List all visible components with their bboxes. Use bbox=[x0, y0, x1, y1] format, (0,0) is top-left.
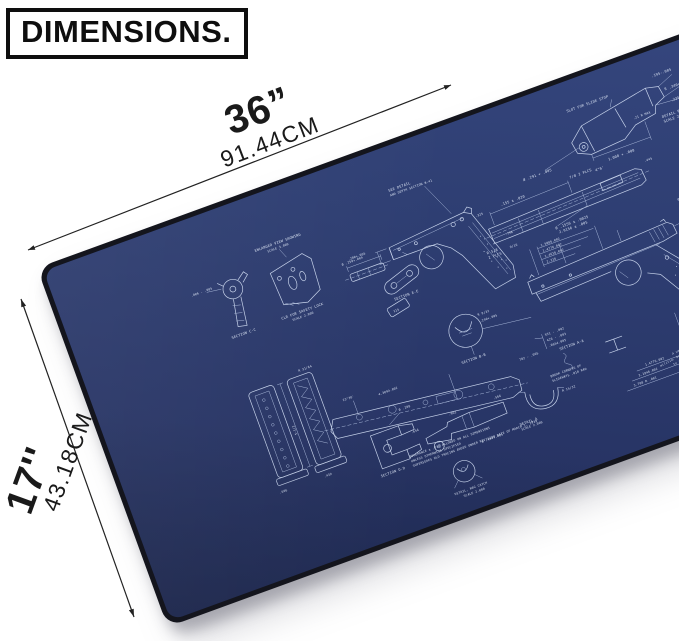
blueprint-annotation: SEE DETAIL bbox=[388, 181, 411, 193]
blueprint-frame-top-view: 4.3094.002 23°36' bbox=[316, 337, 531, 462]
blueprint-annotation: .0654.005 bbox=[548, 338, 567, 348]
blueprint-annotation: SLOT FOR SLIDE STOP bbox=[566, 95, 609, 114]
blueprint-annotation: SCALE 2.000 bbox=[521, 420, 543, 431]
blueprint-annotation: 782 - .005 bbox=[519, 351, 539, 362]
blueprint-annotation: .566 bbox=[493, 394, 502, 401]
blueprint-annotation: 2.216 bbox=[546, 257, 557, 264]
blueprint-annotation: 23°36' bbox=[342, 394, 355, 402]
blueprint-annotation: .962 bbox=[448, 410, 457, 417]
blueprint-pistol-profile: 1.5886.002 1.4776.002 1.4616.002 2.216 Ø… bbox=[517, 179, 679, 413]
blueprint-annotation: .006 - .005 bbox=[191, 286, 213, 297]
blueprint-annotation: Ø .494+.005 bbox=[481, 431, 504, 443]
mousepad-surface: SLOT FOR SLIDE STOP .195-.005 R .340+.01… bbox=[43, 0, 679, 621]
blueprint-annotation: SCALE 2.000 bbox=[292, 311, 314, 322]
blueprint-annotation: .235 + .090 bbox=[670, 90, 679, 102]
blueprint-mag-catch-detail: DETAIL, MAG CATCH SCALE 2.000 bbox=[445, 455, 490, 501]
blueprint-annotation: .240+.005 bbox=[479, 313, 498, 323]
blueprint-annotation: R 5/8 bbox=[486, 248, 498, 256]
blueprint-annotation: Ø .1556 ± .0025 bbox=[555, 214, 590, 231]
blueprint-annotation: 1.4776.002 bbox=[644, 356, 664, 367]
blueprint-annotation: BREAK CORNERS OF bbox=[550, 364, 582, 379]
blueprint-annotation: SCALE 2.000 bbox=[463, 487, 485, 498]
blueprint-annotation: SECTION C-C bbox=[231, 328, 256, 340]
blueprint-pin-part: Ø .250+.004 bbox=[339, 247, 391, 284]
blueprint-detail-a: BREAK CORNERS OF SLIDEWAYS .010 RAD DETA… bbox=[463, 332, 641, 445]
blueprint-annotation: 1.4616.002 bbox=[544, 248, 564, 259]
blueprint-annotation: 3.1946.002 bbox=[638, 367, 658, 378]
blueprint-annotation: R .340+.010 bbox=[664, 79, 679, 91]
blueprint-annotation: 2.9156 ± .005 bbox=[558, 220, 588, 234]
blueprint-annotation: to the security of bbox=[672, 346, 679, 367]
blueprint-frame-view: SEE DETAIL AND DEPTH SECTION W-41 .200+.… bbox=[330, 124, 619, 357]
gun-blueprint-print: SLOT FOR SLIDE STOP .195-.005 R .340+.01… bbox=[43, 0, 679, 621]
blueprint-annotation: 1.008 + .008 bbox=[608, 148, 636, 161]
blueprint-annotation: Ø .291 + .005 bbox=[522, 167, 552, 182]
blueprint-annotation: .439 bbox=[324, 472, 333, 479]
dimensions-title: DIMENSIONS. bbox=[21, 14, 231, 49]
blueprint-annotation: SUPERSEDES OLD TRACING ADDED UNDER REVIS… bbox=[412, 419, 538, 468]
mousepad: SLOT FOR SLIDE STOP .195-.005 R .340+.01… bbox=[37, 0, 679, 627]
blueprint-annotation: 1.5886.002 bbox=[540, 237, 560, 248]
blueprint-annotation: R 31/64 bbox=[298, 364, 313, 373]
blueprint-annotation: .606 bbox=[279, 488, 288, 495]
blueprint-annotation: .325 bbox=[475, 212, 484, 219]
blueprint-annotation: R 15/32 bbox=[561, 384, 576, 393]
blueprint-slide-top-view: .155 ± .020 7/8 2 PLCS Ø .1556 ± .0025 2… bbox=[472, 147, 666, 260]
blueprint-annotation: SECTION B-B bbox=[461, 353, 486, 365]
blueprint-annotation: militia, being necessary bbox=[658, 341, 679, 368]
blueprint-annotation: SECTION D-D bbox=[380, 466, 405, 478]
blueprint-section-circle: SECTION B-B R 9/32 .240+.005 bbox=[444, 293, 538, 366]
blueprint-annotation: TOLERANCE ± .010 ALLOWED ON ALL DIMENSIO… bbox=[409, 426, 491, 459]
blueprint-annotation: SCALE 2.000 bbox=[663, 111, 679, 123]
blueprint-annotation: R 9/32 bbox=[477, 309, 490, 317]
dimensions-title-box: DIMENSIONS. bbox=[6, 8, 248, 59]
blueprint-barrel-parts: SECTION D-D Ø .288 .656 .962 .566 bbox=[361, 373, 514, 479]
blueprint-annotation: SECTION A-A bbox=[559, 339, 585, 352]
blueprint-annotation: .21 R MAX bbox=[633, 110, 652, 120]
blueprint-tolerance-note: TOLERANCE ± .010 ALLOWED ON ALL DIMENSIO… bbox=[409, 410, 538, 468]
blueprint-magazines: 5-1/2 R 31/64 .606 .439 bbox=[242, 364, 350, 495]
blueprint-annotation: ENLARGED VIEW SHOWING bbox=[254, 232, 301, 252]
blueprint-annotation: DETAIL A bbox=[519, 417, 539, 427]
blueprint-dim-cluster: 551 - .002 426 - .003 .0654.005 782 - .0… bbox=[514, 321, 585, 365]
blueprint-annotation: .796 bbox=[505, 230, 514, 237]
blueprint-annotation: DETAIL, MAG CATCH bbox=[454, 481, 488, 497]
blueprint-annotation: SECTION E-E bbox=[394, 289, 419, 301]
blueprint-small-parts: SECTION C-C .006 - .005 ENLARGED VIEW SH… bbox=[184, 198, 433, 379]
blueprint-annotation: SLIDEWAYS .010 RAD bbox=[552, 367, 588, 383]
blueprint-annotation: 4.3094.002 bbox=[378, 386, 398, 397]
blueprint-annotation: 2 PLCS bbox=[488, 252, 503, 261]
blueprint-annotation: 5-1/2 bbox=[291, 425, 298, 436]
blueprint-annotation: CLR FOR SAFETY LOCK bbox=[281, 302, 325, 321]
blueprint-annotation: .200+.005 bbox=[348, 251, 367, 261]
blueprint-annotation: AND DEPTH SECTION W-41 bbox=[389, 178, 432, 197]
blueprint-annotation: 7/8 2 PLCS bbox=[569, 168, 592, 180]
blueprint-annotation: .445 bbox=[644, 156, 653, 163]
blueprint-annotation: Ø .288 bbox=[398, 403, 411, 412]
blueprint-annotation: .195-.005 bbox=[651, 68, 672, 79]
blueprint-annotation: .656 bbox=[411, 428, 420, 435]
blueprint-annotation: .155 ± .020 bbox=[500, 194, 525, 206]
blueprint-annotation: UNLESS OTHERWISE SPECIFIED bbox=[411, 441, 462, 463]
blueprint-annotation: 4°6' bbox=[595, 166, 605, 173]
blueprint-annotation: 3.708 R .001 bbox=[633, 375, 657, 387]
blueprint-annotation: 9/16 bbox=[509, 243, 518, 250]
blueprint-annotation: 551 - .002 bbox=[544, 326, 564, 337]
blueprint-annotation: A well regulated bbox=[671, 337, 679, 356]
blueprint-slide-stop-detail: SLOT FOR SLIDE STOP .195-.005 R .340+.01… bbox=[504, 63, 679, 197]
blueprint-annotation: DETAIL P bbox=[662, 109, 679, 119]
blueprint-annotation: 426 - .003 bbox=[546, 332, 566, 343]
blueprint-annotation: SCALE 3.000 bbox=[267, 242, 289, 253]
blueprint-annotation: 115 bbox=[393, 308, 400, 314]
blueprint-annotation: 1.4776.002 bbox=[542, 242, 562, 253]
blueprint-quote-note: A well regulated militia, being necessar… bbox=[656, 337, 679, 377]
product-image: SLOT FOR SLIDE STOP .195-.005 R .340+.01… bbox=[0, 0, 679, 641]
blueprint-annotation: Ø .250+.004 bbox=[341, 254, 364, 266]
